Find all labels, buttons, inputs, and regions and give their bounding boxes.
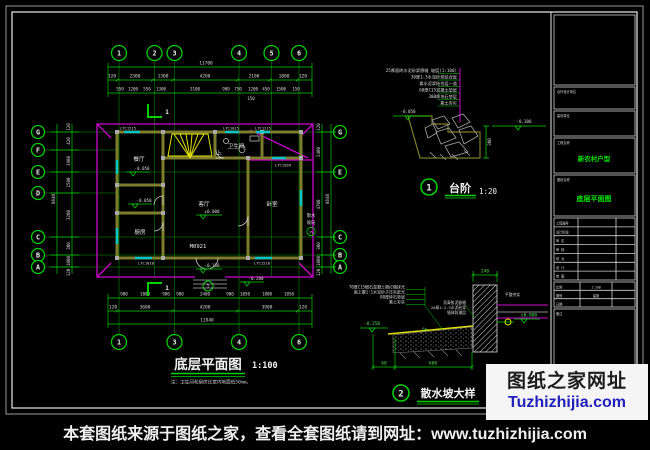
tb-row-label: 制 图 (556, 274, 564, 279)
tb-meta-value: 建施 (593, 293, 600, 298)
axis-bubble: C (338, 234, 342, 242)
layer-note: 素土夯实 (440, 100, 457, 107)
elevation-value: ±0.000 (204, 209, 220, 214)
dim: 550 (116, 87, 124, 92)
stair-up-label: 上 (216, 149, 222, 157)
dim: 900 (176, 292, 184, 297)
top-dimensions: 11700 120 2300 1300 4200 2100 1800 120 5… (108, 61, 312, 118)
layer-note: 素水泥浆结合层一道 (419, 80, 458, 87)
plan-title-text: 底层平面图 (174, 356, 242, 373)
axis-bubble: 4 (237, 339, 241, 347)
dim: 1000 (66, 255, 71, 266)
dim-total-top: 11700 (199, 61, 213, 67)
elevation-value: -0.200 (248, 276, 264, 281)
dim: 120 (109, 305, 117, 311)
axis-bubble: F (36, 147, 40, 155)
detail-number: 2 (398, 390, 403, 400)
axis-bubble: 3 (172, 50, 176, 58)
windows (117, 132, 301, 258)
axis-bubble: G (36, 129, 40, 137)
axis-bubble: 4 (237, 50, 241, 58)
tb-row-label: 工程编号 (556, 221, 569, 226)
dim: 3600 (140, 305, 151, 311)
roof-outline (97, 124, 313, 277)
dim: 1980 (66, 155, 71, 166)
dim-total-right: 8640 (325, 193, 330, 204)
tb-meta-key: 日期 (556, 301, 562, 306)
detail-title: 散水坡大样 (421, 386, 476, 400)
window-label: LTC1515 (120, 126, 136, 131)
dim: 900 (222, 87, 230, 92)
tb-meta-key: 比例 (556, 285, 562, 290)
dim: 900 (162, 292, 170, 297)
dim: 1300 (158, 74, 169, 80)
section-cut-mark (148, 104, 162, 117)
apron-slope-label: 坡向 (307, 219, 316, 226)
right-dimensions: 120 2400 4700 300 1000 120 8640 (316, 123, 336, 277)
layer-note: 30厚1:3水泥砂浆结合层 (411, 74, 457, 81)
window-label: LTC1015 (223, 126, 239, 131)
dim: 4700 (316, 199, 321, 210)
cad-screenshot: 合作设计单位 建设单位 工程名称 新农村户型 图纸名称 底层平面图 工程编号 设… (0, 0, 650, 450)
axis-bubble: G (338, 129, 342, 137)
dim: 150 (247, 96, 255, 101)
axis-bubble: A (338, 264, 342, 272)
elevation-value: -0.050 (400, 109, 416, 114)
dim: 1050 (284, 292, 295, 297)
layer-note: 素土夯实 (389, 299, 405, 305)
dim: 900 (226, 292, 234, 297)
footer-text: 本套图纸来源于图纸之家，查看全套图纸请到网址：www.tuzhizhijia.c… (63, 426, 587, 443)
dim: 120 (299, 74, 307, 80)
dim: 150 (292, 87, 300, 92)
dim: 120 (299, 305, 307, 311)
room-label-bedroom: 卧室 (266, 200, 278, 208)
section-cut-number: 1 (165, 109, 169, 116)
dim: 600 (429, 361, 437, 367)
dim: 120 (316, 268, 321, 276)
room-label-bath: 卫生间 (228, 142, 245, 150)
detail-scale: 1:20 (479, 187, 498, 196)
axis-bubble: 1 (117, 50, 121, 58)
dim: 3900 (262, 305, 273, 311)
wall-section (473, 285, 497, 352)
room-label-kitchen: 厨房 (134, 228, 146, 236)
dim: 1500 (66, 177, 71, 188)
layer-note: 墙体防潮层 (447, 310, 466, 315)
elevation-value: -0.250 (364, 321, 381, 327)
tb-row-label: 审 核 (556, 247, 565, 252)
title-block: 合作设计单位 建设单位 工程名称 新农村户型 图纸名称 底层平面图 工程编号 设… (554, 15, 635, 406)
watermark-title: 图纸之家网址 (507, 371, 627, 393)
tb-row-label: 设计阶段 (556, 229, 570, 234)
dim: 2400 (200, 292, 211, 297)
tb-row-label: 设 计 (556, 265, 565, 270)
door-code-label: M0921 (190, 244, 207, 250)
sheet-frame (6, 6, 643, 414)
elevation-value: -0.050 (136, 198, 152, 203)
dim: 120 (108, 74, 116, 80)
axis-bubble: 6 (297, 339, 301, 347)
apron-note: 散水 坡向 1% (307, 212, 316, 236)
window-label: LTC1818 (138, 261, 155, 266)
steps-detail: 25厚面砖水泥砂浆擦缝 坡度(1:100) 30厚1:3水泥砂浆结合层 素水泥浆… (386, 67, 546, 198)
dim: 4200 (200, 74, 211, 80)
dim: 300 (487, 138, 492, 146)
section-cut-mark (148, 283, 162, 296)
dim: 300 (316, 242, 321, 250)
axis-bubble: D (36, 190, 40, 198)
window-label: LTC1215 (255, 126, 271, 131)
tb-row-label: 校 对 (556, 256, 565, 261)
detail-title: 台阶 (449, 181, 472, 195)
room-label-dining: 餐厅 (133, 155, 145, 163)
elevation-value: -0.150 (204, 263, 220, 268)
dim-total-bottom: 11940 (200, 318, 214, 324)
walls (117, 132, 301, 258)
axis-bubble: E (36, 169, 40, 177)
dim: 4200 (200, 305, 211, 311)
plan-note-text: 注：卫生间和厨房比室内地面低50mm。 (171, 379, 251, 386)
right-note: 平整夯实 (505, 292, 520, 297)
dim: 450 (262, 87, 270, 92)
section-cut-number: 1 (165, 285, 169, 292)
stone-fill (425, 114, 478, 160)
dim: 550 (143, 87, 151, 92)
window-label: LTC1509 (275, 163, 292, 168)
tb-note-label: 备注 (556, 311, 563, 316)
gravel-bed (393, 327, 472, 353)
dim-total-left: 8640 (51, 193, 56, 204)
tb-meta-key: 图别 (556, 293, 562, 298)
elevation-value: ±0.000 (521, 313, 538, 319)
dim: 1000 (316, 255, 321, 266)
watermark-box: 图纸之家网址 Tuzhizhijia.com (486, 364, 648, 420)
elevation-value: -0.300 (516, 119, 532, 124)
watermark-url: Tuzhizhijia.com (508, 393, 626, 413)
doors (154, 150, 248, 269)
axis-bubble: 6 (297, 50, 301, 58)
slope-value: 6% (422, 327, 428, 333)
dim: 1200 (128, 87, 139, 92)
dim: 120 (66, 123, 71, 131)
tb-sheet-label: 图纸名称 (557, 177, 571, 182)
plan-scale-text: 1:100 (252, 361, 278, 371)
axis-bubble: B (36, 252, 40, 260)
dim: 1050 (240, 292, 251, 297)
dim: 750 (234, 87, 242, 92)
tb-project-label: 工程名称 (557, 140, 571, 145)
dim: 240 (481, 269, 489, 275)
layer-note: 300厚块石垫层 (428, 93, 457, 100)
dim: 3100 (190, 87, 201, 92)
left-dimensions: 120 420 1980 1500 3200 300 1000 120 8640 (50, 123, 79, 277)
dim: 420 (66, 137, 71, 145)
axis-bubble: 2 (152, 50, 156, 58)
dim: 120 (66, 268, 71, 276)
tb-meta-value: 1:100 (591, 286, 601, 290)
axis-bubble: B (338, 252, 342, 260)
window-label: LTC1518 (254, 261, 271, 266)
dim: 300 (66, 242, 71, 250)
floor-plan: 餐厅 厨房 客厅 卧室 卫生间 上 M0921 -0.050 -0.050 ±0… (97, 124, 316, 288)
columns (115, 130, 303, 260)
dim: 1800 (262, 292, 273, 297)
elevation-value: -0.050 (134, 166, 150, 171)
dim: 3200 (66, 209, 71, 220)
layer-note: 60厚C15混凝土垫层 (419, 87, 457, 94)
apron-dir-label: 散水 (307, 212, 316, 219)
axis-bubble: 5 (269, 50, 273, 58)
layer-note: 25厚面砖水泥砂浆擦缝 坡度(1:100) (386, 67, 457, 74)
room-label-living: 客厅 (198, 200, 210, 208)
tb-row-label: 审 定 (556, 238, 565, 243)
axis-bubble: C (36, 234, 40, 242)
drawing-canvas: 合作设计单位 建设单位 工程名称 新农村户型 图纸名称 底层平面图 工程编号 设… (0, 0, 650, 420)
plan-title: 底层平面图 1:100 注：卫生间和厨房比室内地面低50mm。 (171, 356, 278, 386)
dim: 900 (120, 292, 128, 297)
axis-bubble: 1 (117, 339, 121, 347)
tb-project-name: 新农村户型 (578, 154, 611, 163)
dim: 60 (381, 361, 387, 367)
tb-owner-label: 建设单位 (557, 113, 571, 118)
dim: 120 (316, 123, 321, 131)
tb-partner-label: 合作设计单位 (557, 89, 577, 94)
dim: 1800 (279, 74, 290, 80)
dim: 2400 (316, 146, 321, 157)
dim: 1300 (156, 87, 167, 92)
axis-bubble: E (338, 169, 342, 177)
axis-bubble: A (36, 264, 40, 272)
dim: 2300 (130, 74, 141, 80)
dim: 2100 (249, 74, 260, 80)
dim: 1500 (276, 87, 287, 92)
tb-sheet-name: 底层平面图 (577, 194, 612, 203)
detail-number: 1 (426, 184, 431, 194)
dim: 1200 (248, 87, 259, 92)
axis-bubble: 3 (172, 339, 176, 347)
footer-banner: 本套图纸来源于图纸之家，查看全套图纸请到网址：www.tuzhizhijia.c… (0, 420, 650, 450)
